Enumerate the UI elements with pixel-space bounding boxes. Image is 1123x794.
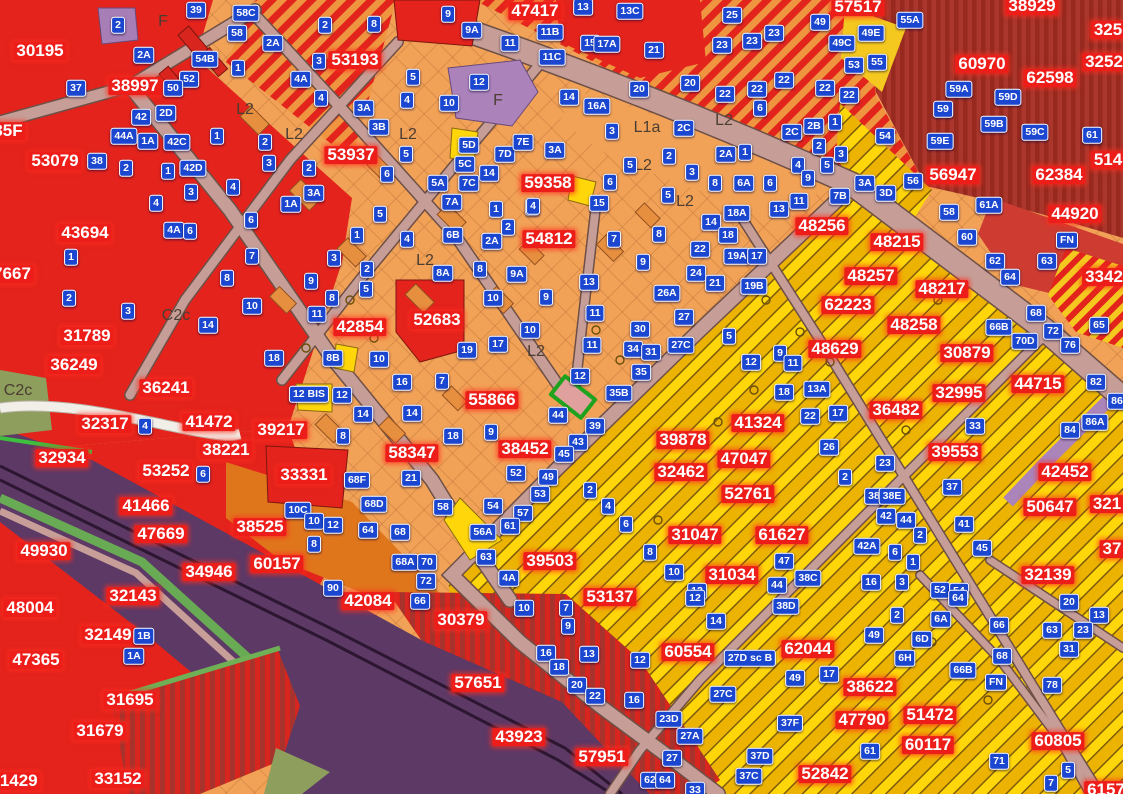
parcel-id-label[interactable]: 51472 (903, 706, 956, 724)
parcel-number-badge[interactable]: 6 (753, 100, 767, 117)
parcel-id-label[interactable]: 30879 (940, 344, 993, 362)
parcel-id-label[interactable]: 52842 (798, 765, 851, 783)
parcel-number-badge[interactable]: 3 (605, 123, 619, 140)
parcel-id-label[interactable]: 38452 (498, 440, 551, 458)
parcel-id-label[interactable]: 44715 (1011, 375, 1064, 393)
parcel-number-badge[interactable]: 4 (138, 418, 152, 435)
parcel-number-badge[interactable]: 33 (965, 418, 985, 435)
parcel-number-badge[interactable]: 63 (476, 549, 496, 566)
parcel-number-badge[interactable]: 55 (867, 54, 887, 71)
parcel-number-badge[interactable]: 6 (888, 544, 902, 561)
parcel-number-badge[interactable]: 10 (520, 322, 540, 339)
parcel-number-badge[interactable]: 8 (325, 290, 339, 307)
parcel-number-badge[interactable]: 4 (400, 92, 414, 109)
parcel-number-badge[interactable]: 14 (198, 317, 218, 334)
parcel-number-badge[interactable]: 23 (742, 33, 762, 50)
parcel-number-badge[interactable]: 22 (690, 241, 710, 258)
parcel-number-badge[interactable]: 16 (861, 574, 881, 591)
parcel-number-badge[interactable]: 6 (619, 516, 633, 533)
parcel-id-label[interactable]: 38929 (1005, 0, 1058, 15)
parcel-id-label[interactable]: 47669 (134, 525, 187, 543)
parcel-number-badge[interactable]: 49 (864, 627, 884, 644)
parcel-number-badge[interactable]: 10 (664, 564, 684, 581)
parcel-number-badge[interactable]: 18 (549, 659, 569, 676)
parcel-number-badge[interactable]: 64 (655, 772, 675, 789)
parcel-number-badge[interactable]: 24 (686, 265, 706, 282)
parcel-number-badge[interactable]: 7 (435, 373, 449, 390)
parcel-number-badge[interactable]: 66 (989, 617, 1009, 634)
parcel-number-badge[interactable]: 11 (783, 355, 802, 372)
parcel-id-label[interactable]: 47417 (508, 2, 561, 20)
parcel-number-badge[interactable]: 23D (655, 711, 682, 728)
parcel-number-badge[interactable]: 3D (875, 185, 896, 202)
parcel-number-badge[interactable]: 5 (1061, 762, 1075, 779)
parcel-id-label[interactable]: 60805 (1031, 732, 1084, 750)
parcel-number-badge[interactable]: 8B (322, 350, 343, 367)
parcel-number-badge[interactable]: 20 (1059, 594, 1079, 611)
parcel-number-badge[interactable]: 7 (245, 248, 259, 265)
parcel-number-badge[interactable]: 5A (427, 175, 448, 192)
parcel-number-badge[interactable]: 35B (605, 385, 632, 402)
parcel-id-label[interactable]: 32149 (81, 626, 134, 644)
parcel-number-badge[interactable]: 61 (500, 518, 520, 535)
parcel-number-badge[interactable]: 8 (708, 175, 722, 192)
parcel-number-badge[interactable]: 22 (747, 81, 767, 98)
parcel-id-label[interactable]: 32143 (106, 587, 159, 605)
parcel-id-label[interactable]: 59358 (521, 174, 574, 192)
parcel-id-label[interactable]: 42084 (341, 592, 394, 610)
parcel-number-badge[interactable]: 37 (942, 479, 962, 496)
parcel-number-badge[interactable]: 58 (939, 204, 959, 221)
parcel-number-badge[interactable]: 2A (715, 146, 736, 163)
parcel-number-badge[interactable]: 66B (985, 319, 1012, 336)
parcel-id-label[interactable]: 30379 (434, 611, 487, 629)
parcel-id-label[interactable]: 39217 (254, 421, 307, 439)
parcel-number-badge[interactable]: 1 (350, 227, 364, 244)
parcel-number-badge[interactable]: 59B (980, 116, 1007, 133)
parcel-number-badge[interactable]: 12 (469, 74, 489, 91)
parcel-number-badge[interactable]: 2A (262, 35, 283, 52)
parcel-id-label[interactable]: 53193 (328, 51, 381, 69)
parcel-id-label[interactable]: 48629 (808, 340, 861, 358)
parcel-number-badge[interactable]: 37D (746, 748, 773, 765)
parcel-number-badge[interactable]: 59A (945, 81, 972, 98)
parcel-number-badge[interactable]: 5C (454, 156, 475, 173)
parcel-number-badge[interactable]: 27 (674, 309, 694, 326)
parcel-number-badge[interactable]: FN (985, 674, 1007, 691)
parcel-id-label[interactable]: 48256 (795, 217, 848, 235)
parcel-number-badge[interactable]: 5 (623, 157, 637, 174)
parcel-number-badge[interactable]: 8 (643, 544, 657, 561)
parcel-number-badge[interactable]: 56 (903, 173, 923, 190)
parcel-id-label[interactable]: 53937 (324, 146, 377, 164)
parcel-number-badge[interactable]: 38 (87, 153, 107, 170)
parcel-number-badge[interactable]: 33 (685, 782, 705, 794)
parcel-number-badge[interactable]: 2 (119, 160, 133, 177)
parcel-id-label[interactable]: 62384 (1032, 166, 1085, 184)
parcel-number-badge[interactable]: 13A (803, 381, 830, 398)
parcel-number-badge[interactable]: 13 (579, 274, 599, 291)
parcel-id-label[interactable]: 48217 (915, 280, 968, 298)
parcel-number-badge[interactable]: 6 (244, 212, 258, 229)
parcel-number-badge[interactable]: 18 (443, 428, 463, 445)
parcel-id-label[interactable]: 39878 (656, 431, 709, 449)
parcel-number-badge[interactable]: 3 (327, 250, 341, 267)
parcel-number-badge[interactable]: 4A (163, 222, 184, 239)
parcel-number-badge[interactable]: 66 (410, 593, 430, 610)
parcel-number-badge[interactable]: 5 (820, 157, 834, 174)
parcel-id-label[interactable]: 62598 (1023, 69, 1076, 87)
parcel-number-badge[interactable]: 37C (735, 768, 762, 785)
parcel-number-badge[interactable]: 18 (774, 384, 794, 401)
parcel-number-badge[interactable]: 2 (258, 134, 272, 151)
parcel-number-badge[interactable]: 10 (369, 351, 389, 368)
parcel-number-badge[interactable]: 2 (501, 219, 515, 236)
parcel-number-badge[interactable]: 68 (1026, 305, 1046, 322)
parcel-number-badge[interactable]: 7E (513, 134, 534, 151)
parcel-number-badge[interactable]: 2 (662, 148, 676, 165)
parcel-number-badge[interactable]: 4A (498, 570, 519, 587)
parcel-number-badge[interactable]: 9 (441, 6, 455, 23)
parcel-number-badge[interactable]: 49E (858, 25, 885, 42)
parcel-number-badge[interactable]: 2 (111, 17, 125, 34)
parcel-number-badge[interactable]: 22 (839, 87, 859, 104)
parcel-number-badge[interactable]: 26 (819, 439, 839, 456)
parcel-number-badge[interactable]: 37 (66, 80, 86, 97)
parcel-number-badge[interactable]: 12 (323, 517, 343, 534)
parcel-id-label[interactable]: 41324 (731, 414, 784, 432)
parcel-number-badge[interactable]: 1 (161, 163, 175, 180)
parcel-number-badge[interactable]: 72 (416, 573, 436, 590)
parcel-number-badge[interactable]: 7 (559, 600, 573, 617)
parcel-number-badge[interactable]: 3A (854, 175, 875, 192)
parcel-id-label[interactable]: 39503 (523, 552, 576, 570)
parcel-number-badge[interactable]: 13 (579, 646, 599, 663)
parcel-number-badge[interactable]: 30 (630, 321, 650, 338)
parcel-number-badge[interactable]: 54 (875, 128, 895, 145)
parcel-number-badge[interactable]: 31 (1059, 641, 1079, 658)
parcel-number-badge[interactable]: 68 (390, 524, 410, 541)
parcel-number-badge[interactable]: 12 (332, 387, 352, 404)
parcel-number-badge[interactable]: 26A (653, 285, 680, 302)
parcel-id-label[interactable]: 36241 (139, 379, 192, 397)
parcel-number-badge[interactable]: 72 (1043, 323, 1063, 340)
parcel-number-badge[interactable]: 19B (740, 278, 767, 295)
parcel-number-badge[interactable]: 8 (367, 16, 381, 33)
parcel-number-badge[interactable]: 10 (242, 298, 262, 315)
parcel-number-badge[interactable]: 63 (1042, 622, 1062, 639)
parcel-number-badge[interactable]: 6 (380, 166, 394, 183)
parcel-number-badge[interactable]: 2C (673, 120, 694, 137)
parcel-id-label[interactable]: 38525 (233, 518, 286, 536)
parcel-number-badge[interactable]: 9 (561, 618, 575, 635)
parcel-number-badge[interactable]: 50 (163, 80, 183, 97)
parcel-number-badge[interactable]: 44 (767, 577, 787, 594)
parcel-number-badge[interactable]: 7 (1044, 775, 1058, 792)
parcel-number-badge[interactable]: 3A (353, 100, 374, 117)
parcel-id-label[interactable]: 49930 (17, 542, 70, 560)
parcel-number-badge[interactable]: 27C (709, 686, 736, 703)
parcel-number-badge[interactable]: 2 (913, 527, 927, 544)
parcel-id-label[interactable]: 32995 (932, 384, 985, 402)
parcel-id-label[interactable]: 31429 (0, 772, 41, 790)
parcel-number-badge[interactable]: 86 (1107, 393, 1123, 410)
parcel-id-label[interactable]: 58347 (385, 444, 438, 462)
parcel-number-badge[interactable]: 9A (506, 266, 527, 283)
parcel-id-label[interactable]: 38221 (199, 441, 252, 459)
parcel-number-badge[interactable]: 8 (473, 261, 487, 278)
parcel-number-badge[interactable]: 39 (585, 418, 605, 435)
parcel-number-badge[interactable]: 18 (264, 350, 284, 367)
parcel-id-label[interactable]: 3342 (1082, 268, 1123, 286)
parcel-number-badge[interactable]: 70 (417, 554, 437, 571)
parcel-number-badge[interactable]: 63 (1037, 253, 1057, 270)
parcel-number-badge[interactable]: 49 (810, 14, 830, 31)
parcel-number-badge[interactable]: 13 (769, 201, 789, 218)
parcel-number-badge[interactable]: 37F (777, 715, 803, 732)
parcel-number-badge[interactable]: 49 (538, 469, 558, 486)
parcel-id-label[interactable]: 39553 (928, 443, 981, 461)
parcel-number-badge[interactable]: 2A (481, 233, 502, 250)
parcel-number-badge[interactable]: 8 (220, 270, 234, 287)
parcel-number-badge[interactable]: 4 (526, 198, 540, 215)
parcel-id-label[interactable]: 36249 (47, 356, 100, 374)
parcel-number-badge[interactable]: 6 (603, 174, 617, 191)
parcel-number-badge[interactable]: 4 (601, 498, 615, 515)
parcel-id-label[interactable]: 34946 (182, 563, 235, 581)
parcel-id-label[interactable]: 60970 (955, 55, 1008, 73)
parcel-number-badge[interactable]: 58C (232, 5, 259, 22)
parcel-number-badge[interactable]: 6D (911, 631, 932, 648)
parcel-number-badge[interactable]: 59C (1021, 124, 1048, 141)
parcel-id-label[interactable]: 57517 (831, 0, 884, 16)
parcel-number-badge[interactable]: 1A (280, 196, 301, 213)
parcel-number-badge[interactable]: 22 (585, 688, 605, 705)
parcel-number-badge[interactable]: 7B (829, 188, 850, 205)
parcel-number-badge[interactable]: 27D sc B (724, 650, 776, 667)
parcel-number-badge[interactable]: 2 (360, 261, 374, 278)
parcel-number-badge[interactable]: 27A (676, 728, 703, 745)
parcel-number-badge[interactable]: 5 (661, 187, 675, 204)
parcel-number-badge[interactable]: 84 (1060, 422, 1080, 439)
parcel-number-badge[interactable]: 58 (433, 499, 453, 516)
parcel-number-badge[interactable]: 35 (631, 364, 651, 381)
parcel-number-badge[interactable]: 2D (155, 105, 176, 122)
parcel-id-label[interactable]: 31047 (668, 526, 721, 544)
parcel-number-badge[interactable]: 9 (801, 170, 815, 187)
parcel-id-label[interactable]: 53079 (28, 152, 81, 170)
parcel-number-badge[interactable]: 42D (179, 160, 206, 177)
parcel-number-badge[interactable]: 11 (500, 35, 519, 52)
parcel-number-badge[interactable]: 14 (706, 613, 726, 630)
parcel-number-badge[interactable]: 70D (1011, 333, 1038, 350)
parcel-number-badge[interactable]: 11 (789, 193, 808, 210)
parcel-number-badge[interactable]: 64 (358, 522, 378, 539)
parcel-id-label[interactable]: 31695 (103, 691, 156, 709)
parcel-number-badge[interactable]: 6 (196, 466, 210, 483)
parcel-number-badge[interactable]: 68A (391, 554, 418, 571)
parcel-number-badge[interactable]: 22 (815, 80, 835, 97)
parcel-number-badge[interactable]: 22 (715, 86, 735, 103)
parcel-number-badge[interactable]: 2 (583, 482, 597, 499)
parcel-number-badge[interactable]: 6A (930, 611, 951, 628)
parcel-number-badge[interactable]: 9 (484, 424, 498, 441)
parcel-id-label[interactable]: 57951 (575, 748, 628, 766)
parcel-id-label[interactable]: 54812 (522, 230, 575, 248)
parcel-number-badge[interactable]: 22 (800, 408, 820, 425)
parcel-id-label[interactable]: 56947 (926, 166, 979, 184)
parcel-id-label[interactable]: 44920 (1048, 205, 1101, 223)
parcel-id-label[interactable]: 60554 (661, 643, 714, 661)
parcel-number-badge[interactable]: 59E (927, 133, 954, 150)
parcel-number-badge[interactable]: 59 (933, 101, 953, 118)
parcel-number-badge[interactable]: 18A (723, 205, 750, 222)
parcel-number-badge[interactable]: 41 (954, 516, 974, 533)
parcel-number-badge[interactable]: 49C (828, 35, 855, 52)
parcel-id-label[interactable]: 6157 (1084, 781, 1123, 794)
parcel-number-badge[interactable]: 7 (607, 231, 621, 248)
parcel-number-badge[interactable]: 27 (662, 750, 682, 767)
parcel-number-badge[interactable]: 78 (1042, 677, 1062, 694)
parcel-number-badge[interactable]: 3A (303, 185, 324, 202)
parcel-id-label[interactable]: 62044 (781, 640, 834, 658)
parcel-number-badge[interactable]: 8 (307, 536, 321, 553)
parcel-number-badge[interactable]: 1B (133, 628, 154, 645)
parcel-id-label[interactable]: 53252 (139, 462, 192, 480)
parcel-number-badge[interactable]: 10 (304, 513, 324, 530)
parcel-id-label[interactable]: 47365 (9, 651, 62, 669)
parcel-number-badge[interactable]: 9 (304, 273, 318, 290)
parcel-id-label[interactable]: 50647 (1023, 498, 1076, 516)
parcel-number-badge[interactable]: 56A (469, 524, 496, 541)
parcel-id-label[interactable]: 38622 (843, 678, 896, 696)
parcel-number-badge[interactable]: 62 (985, 253, 1005, 270)
parcel-id-label[interactable]: 47047 (717, 450, 770, 468)
parcel-id-label[interactable]: 41466 (119, 497, 172, 515)
parcel-number-badge[interactable]: 17 (747, 248, 767, 265)
parcel-number-badge[interactable]: 61 (1082, 127, 1102, 144)
parcel-number-badge[interactable]: 27C (667, 337, 694, 354)
parcel-number-badge[interactable]: 3 (121, 303, 135, 320)
parcel-number-badge[interactable]: 11 (307, 306, 326, 323)
parcel-number-badge[interactable]: 1 (210, 128, 224, 145)
parcel-id-label[interactable]: 55866 (465, 391, 518, 409)
parcel-number-badge[interactable]: 2 (890, 607, 904, 624)
parcel-number-badge[interactable]: 5D (458, 137, 479, 154)
parcel-number-badge[interactable]: 2 (812, 138, 826, 155)
parcel-number-badge[interactable]: 21 (644, 42, 664, 59)
parcel-number-badge[interactable]: 5 (373, 206, 387, 223)
parcel-number-badge[interactable]: 3 (312, 53, 326, 70)
parcel-number-badge[interactable]: 58 (227, 25, 247, 42)
cadastral-map-canvas[interactable]: 30195389975307935F5319353937474175751738… (0, 0, 1123, 794)
parcel-number-badge[interactable]: 2 (838, 469, 852, 486)
parcel-number-badge[interactable]: 31 (641, 344, 661, 361)
parcel-id-label[interactable]: 31679 (73, 722, 126, 740)
parcel-id-label[interactable]: 61627 (755, 526, 808, 544)
parcel-number-badge[interactable]: 66B (949, 662, 976, 679)
parcel-number-badge[interactable]: 2 (62, 290, 76, 307)
parcel-number-badge[interactable]: 20 (567, 677, 587, 694)
parcel-id-label[interactable]: 37 (1100, 540, 1123, 558)
parcel-id-label[interactable]: 36482 (869, 401, 922, 419)
parcel-id-label[interactable]: 33331 (277, 466, 330, 484)
parcel-number-badge[interactable]: 11C (539, 49, 566, 66)
parcel-number-badge[interactable]: 42 (131, 109, 151, 126)
parcel-number-badge[interactable]: 14 (559, 89, 579, 106)
parcel-id-label[interactable]: 42854 (333, 318, 386, 336)
parcel-number-badge[interactable]: 53 (530, 486, 550, 503)
parcel-id-label[interactable]: 30195 (13, 42, 66, 60)
parcel-number-badge[interactable]: 17A (593, 36, 620, 53)
parcel-number-badge[interactable]: 6H (894, 650, 915, 667)
parcel-number-badge[interactable]: 65 (1089, 317, 1109, 334)
parcel-number-badge[interactable]: 7A (441, 194, 462, 211)
parcel-number-badge[interactable]: 2 (318, 17, 332, 34)
parcel-number-badge[interactable]: 17 (488, 336, 508, 353)
parcel-id-label[interactable]: 48258 (887, 316, 940, 334)
parcel-number-badge[interactable]: FN (1056, 232, 1078, 249)
parcel-number-badge[interactable]: 3 (184, 184, 198, 201)
parcel-number-badge[interactable]: 52 (506, 465, 526, 482)
parcel-id-label[interactable]: 52683 (410, 311, 463, 329)
parcel-number-badge[interactable]: 34 (623, 341, 643, 358)
parcel-number-badge[interactable]: 6A (733, 175, 754, 192)
parcel-number-badge[interactable]: 5 (722, 328, 736, 345)
parcel-number-badge[interactable]: 10 (514, 600, 534, 617)
parcel-id-label[interactable]: 3252 (1082, 53, 1123, 71)
parcel-number-badge[interactable]: 71 (989, 753, 1009, 770)
parcel-number-badge[interactable]: 12 (570, 368, 590, 385)
parcel-number-badge[interactable]: 1 (231, 60, 245, 77)
parcel-id-label[interactable]: 60157 (250, 555, 303, 573)
parcel-number-badge[interactable]: 3 (895, 574, 909, 591)
parcel-number-badge[interactable]: 54 (483, 498, 503, 515)
parcel-number-badge[interactable]: 2C (781, 124, 802, 141)
parcel-number-badge[interactable]: 13 (1089, 607, 1109, 624)
parcel-number-badge[interactable]: 2 (302, 160, 316, 177)
parcel-number-badge[interactable]: 1 (64, 249, 78, 266)
parcel-id-label[interactable]: 33152 (91, 770, 144, 788)
parcel-id-label[interactable]: 32139 (1021, 566, 1074, 584)
parcel-number-badge[interactable]: 14 (479, 165, 499, 182)
parcel-number-badge[interactable]: 1A (137, 133, 158, 150)
parcel-number-badge[interactable]: 53 (844, 57, 864, 74)
parcel-id-label[interactable]: 43694 (58, 224, 111, 242)
parcel-number-badge[interactable]: 4 (149, 195, 163, 212)
parcel-number-badge[interactable]: 49 (785, 670, 805, 687)
parcel-number-badge[interactable]: 44 (896, 512, 916, 529)
parcel-number-badge[interactable]: 4 (226, 179, 240, 196)
parcel-number-badge[interactable]: 5 (406, 69, 420, 86)
parcel-number-badge[interactable]: 10 (483, 290, 503, 307)
parcel-id-label[interactable]: 53137 (583, 588, 636, 606)
parcel-number-badge[interactable]: 3 (685, 164, 699, 181)
parcel-number-badge[interactable]: 64 (1000, 269, 1020, 286)
parcel-id-label[interactable]: 514 (1091, 151, 1123, 169)
parcel-number-badge[interactable]: 82 (1086, 374, 1106, 391)
parcel-number-badge[interactable]: 17 (819, 666, 839, 683)
parcel-number-badge[interactable]: 12 BIS (289, 386, 329, 403)
parcel-number-badge[interactable]: 1 (738, 144, 752, 161)
parcel-number-badge[interactable]: 42C (163, 134, 190, 151)
parcel-number-badge[interactable]: 21 (705, 275, 725, 292)
parcel-number-badge[interactable]: 38C (794, 570, 821, 587)
parcel-number-badge[interactable]: 13C (616, 3, 643, 20)
parcel-number-badge[interactable]: 18 (718, 227, 738, 244)
parcel-number-badge[interactable]: 7C (458, 175, 479, 192)
parcel-number-badge[interactable]: 39 (186, 2, 206, 19)
